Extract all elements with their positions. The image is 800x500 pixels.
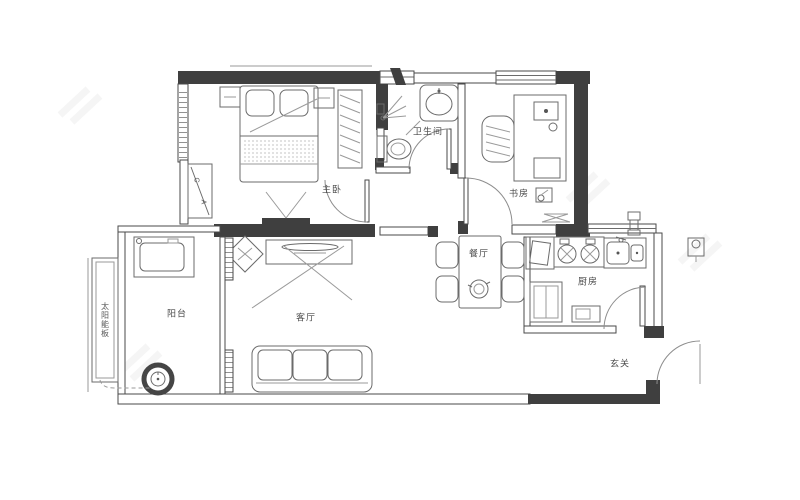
room-label-entryway: 玄关 <box>610 357 630 370</box>
study-furniture <box>482 95 570 222</box>
label-ac-bottom: A <box>200 200 207 205</box>
room-label-bathroom: 卫生间 <box>413 125 443 138</box>
ac-unit <box>188 164 212 218</box>
washing-machine <box>144 365 172 393</box>
stove <box>554 237 604 267</box>
bedroom-tv <box>262 192 310 224</box>
wardrobe <box>338 90 362 168</box>
label-ac-top: C <box>193 177 200 182</box>
master-bedroom-furniture <box>220 86 362 224</box>
bathroom-fixtures <box>377 85 458 162</box>
room-label-master-bedroom: 主卧 <box>322 183 342 196</box>
label-solar-panel: 太阳能板 <box>100 302 111 338</box>
floor-lamp <box>536 188 552 202</box>
room-label-living: 客厅 <box>296 311 316 324</box>
exterior-walls <box>88 66 664 404</box>
window-sill-mark <box>542 214 570 222</box>
balcony-cabinet <box>134 237 194 277</box>
floor-plan-drawing <box>0 0 800 500</box>
sofa <box>252 346 372 392</box>
kitchen-sink <box>604 237 646 268</box>
room-label-balcony: 阳台 <box>167 307 187 320</box>
room-label-dining: 餐厅 <box>469 247 489 260</box>
room-label-kitchen: 厨房 <box>578 275 598 288</box>
double-bed <box>240 86 318 182</box>
fridge <box>530 282 562 322</box>
floor-plan-canvas: 主卧 卫生间 书房 餐厅 厨房 客厅 阳台 玄关 太阳能板 C A <box>0 0 800 500</box>
tv-stand <box>252 240 352 308</box>
office-chair <box>482 116 514 162</box>
room-label-study: 书房 <box>509 187 529 200</box>
